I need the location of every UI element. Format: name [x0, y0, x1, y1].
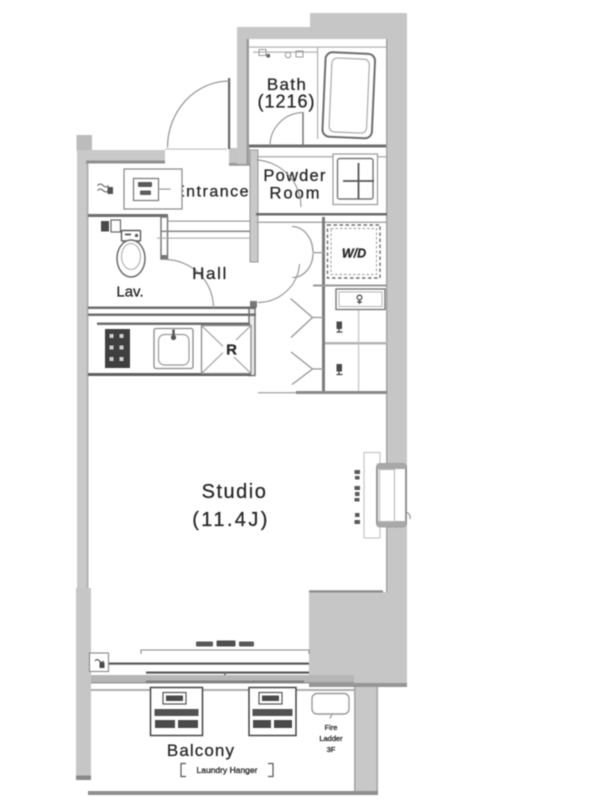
svg-text:W/D: W/D: [342, 247, 366, 261]
svg-text:Room: Room: [269, 185, 321, 203]
svg-text:Fire: Fire: [325, 723, 338, 732]
svg-text:Laundry Hanger: Laundry Hanger: [197, 765, 258, 775]
svg-text:Lav.: Lav.: [116, 284, 143, 301]
svg-text:Entrance: Entrance: [174, 184, 250, 201]
svg-text:R: R: [226, 342, 237, 359]
svg-text:Hall: Hall: [192, 264, 228, 283]
svg-text:(1216): (1216): [257, 92, 315, 112]
svg-text:Powder: Powder: [263, 167, 326, 185]
svg-text:3F: 3F: [327, 745, 336, 754]
svg-text:Ladder: Ladder: [319, 734, 343, 743]
svg-text:Balcony: Balcony: [167, 741, 235, 760]
svg-text:(11.4J): (11.4J): [192, 509, 270, 531]
svg-text:Studio: Studio: [202, 481, 268, 503]
